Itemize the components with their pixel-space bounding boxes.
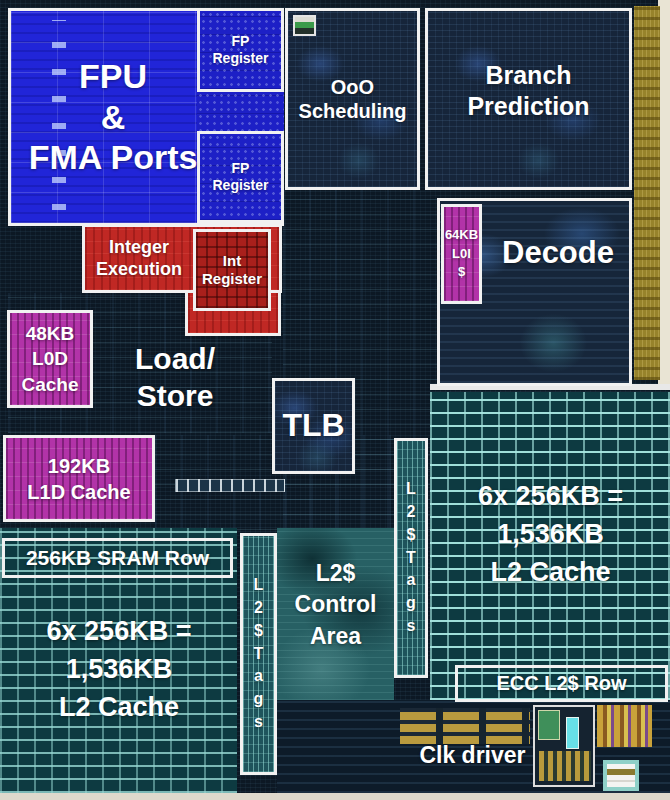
l2-tags-left-label: L 2 $ T a g s [240,533,277,775]
decode-label: Decode [484,208,632,298]
die-shot-canvas: 64KB L0I $ Decode FPU & FMA Ports FP Reg… [0,0,670,800]
l0i-cache-label: 64KB L0I $ [441,204,482,304]
analog-green-pad [538,710,560,740]
branch-prediction-label: Branch Prediction [425,8,632,173]
fp-register-top-label: FP Register [197,8,284,92]
ooo-scheduling-label: OoO Scheduling [285,8,420,190]
ecc-row-label: ECC L2$ Row [455,665,668,702]
int-register-label: Int Register [193,229,271,311]
tlb-label: TLB [272,378,355,474]
l0d-cache-label: 48KB L0D Cache [7,310,93,408]
io-pads-row [175,479,285,492]
clk-driver-label: Clk driver [390,738,555,772]
analog-cyan-bar [566,717,579,749]
l2-cache-left-label: 6x 256KB = 1,536KB L2 Cache [8,600,230,740]
fp-register-bottom-label: FP Register [197,131,284,223]
fpu-label: FPU & FMA Ports [8,8,218,226]
l2-cache-right-label: 6x 256KB = 1,536KB L2 Cache [448,465,653,605]
l2-control-label: L2$ Control Area [277,545,394,665]
die-edge-bottom [0,793,670,800]
l2-tags-right-label: L 2 $ T a g s [394,438,428,678]
l1d-cache-label: 192KB L1D Cache [3,435,155,522]
gold-io-strip [634,6,660,380]
sram-row-label: 256KB SRAM Row [2,538,233,578]
test-structure-block [603,760,639,791]
integer-execution-label: Integer Execution [85,228,193,290]
clk-mixed-block [597,705,652,747]
load-store-label: Load/ Store [95,330,255,425]
